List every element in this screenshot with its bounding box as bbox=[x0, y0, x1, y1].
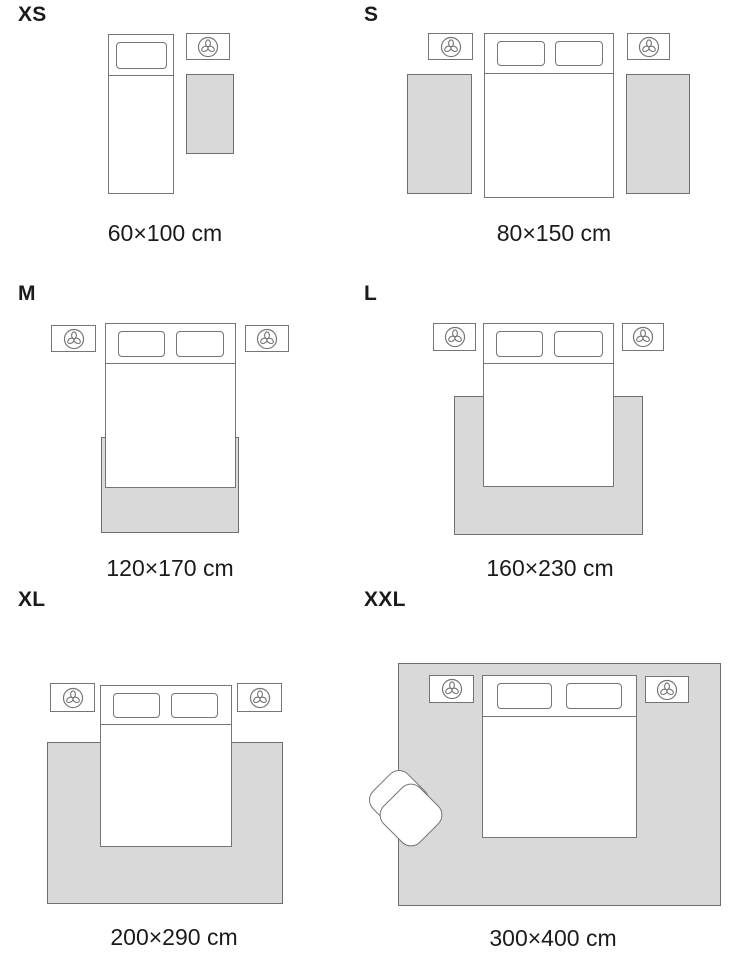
bed-double-m bbox=[105, 323, 236, 488]
size-label-m: M bbox=[18, 283, 36, 304]
size-caption-xl: 200×290 cm bbox=[74, 924, 274, 952]
size-label-l: L bbox=[364, 283, 377, 304]
plant-icon bbox=[197, 36, 219, 58]
plant-icon bbox=[440, 36, 462, 58]
nightstand-s-right bbox=[627, 33, 670, 60]
nightstand-xs bbox=[186, 33, 230, 60]
plant-icon bbox=[444, 326, 466, 348]
nightstand-xxl-right bbox=[645, 676, 689, 703]
pillow bbox=[118, 331, 165, 357]
nightstand-s-left bbox=[428, 33, 473, 60]
nightstand-l-right bbox=[622, 323, 664, 351]
plant-icon bbox=[656, 679, 678, 701]
bed-double-s bbox=[484, 33, 614, 198]
pillow bbox=[496, 331, 543, 357]
bed-double-xxl bbox=[482, 675, 637, 838]
size-caption-m: 120×170 cm bbox=[70, 555, 270, 583]
plant-icon bbox=[249, 687, 271, 709]
bed-double-xl bbox=[100, 685, 232, 847]
nightstand-xxl-left bbox=[429, 675, 474, 703]
bed-double-l bbox=[483, 323, 614, 487]
nightstand-m-right bbox=[245, 325, 289, 352]
size-label-xs: XS bbox=[18, 4, 47, 25]
pillow bbox=[176, 331, 224, 357]
headboard-line bbox=[109, 75, 173, 76]
size-label-xxl: XXL bbox=[364, 589, 406, 610]
nightstand-xl-left bbox=[50, 683, 95, 712]
pillow bbox=[554, 331, 603, 357]
rug-s-left bbox=[407, 74, 472, 194]
plant-icon bbox=[441, 678, 463, 700]
pillow bbox=[497, 683, 552, 709]
pillow bbox=[497, 41, 545, 66]
nightstand-xl-right bbox=[237, 683, 282, 712]
nightstand-l-left bbox=[433, 323, 476, 351]
plant-icon bbox=[63, 328, 85, 350]
rug-xs bbox=[186, 74, 234, 154]
size-label-s: S bbox=[364, 4, 378, 25]
pillow bbox=[113, 693, 160, 718]
plant-icon bbox=[632, 326, 654, 348]
size-caption-xxl: 300×400 cm bbox=[453, 925, 653, 953]
pillow bbox=[171, 693, 218, 718]
size-caption-s: 80×150 cm bbox=[454, 220, 654, 248]
size-caption-xs: 60×100 cm bbox=[65, 220, 265, 248]
rug-size-guide: XS 60×100 cm S 80×150 cm M bbox=[0, 0, 740, 960]
headboard-line bbox=[101, 724, 231, 725]
headboard-line bbox=[484, 363, 613, 364]
pillow bbox=[555, 41, 603, 66]
size-label-xl: XL bbox=[18, 589, 45, 610]
headboard-line bbox=[106, 363, 235, 364]
pillow bbox=[566, 683, 622, 709]
plant-icon bbox=[62, 687, 84, 709]
plant-icon bbox=[256, 328, 278, 350]
pillow bbox=[116, 42, 167, 69]
headboard-line bbox=[483, 716, 636, 717]
headboard-line bbox=[485, 73, 613, 74]
bed-single-xs bbox=[108, 34, 174, 194]
rug-s-right bbox=[626, 74, 690, 194]
nightstand-m-left bbox=[51, 325, 96, 352]
size-caption-l: 160×230 cm bbox=[450, 555, 650, 583]
plant-icon bbox=[638, 36, 660, 58]
